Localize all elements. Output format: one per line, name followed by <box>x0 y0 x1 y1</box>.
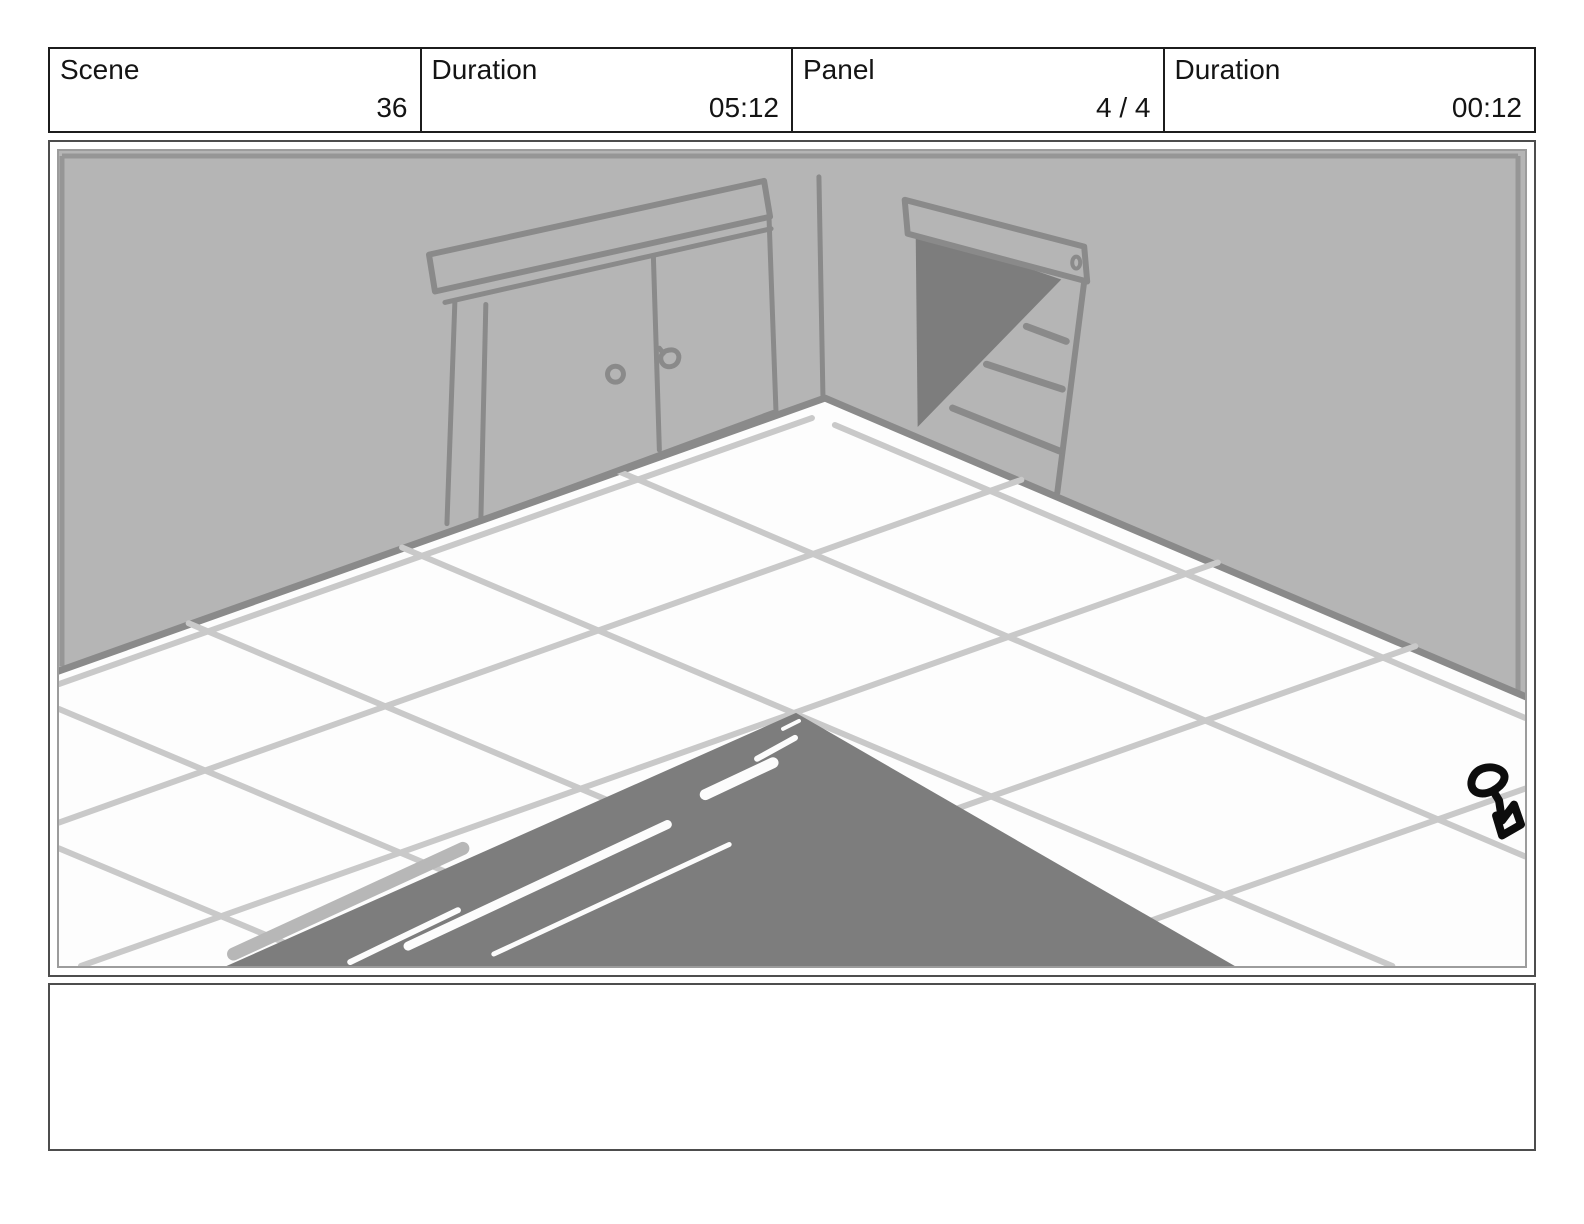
storyboard-canvas <box>57 149 1527 968</box>
storyboard-sketch <box>59 151 1525 966</box>
foreground-ramp <box>227 713 1235 966</box>
panel-duration-label: Duration <box>1175 54 1281 86</box>
notes-box[interactable] <box>48 983 1536 1151</box>
storyboard-panel-frame <box>48 140 1536 977</box>
ramp-fill <box>227 713 1235 966</box>
info-bar: Scene 36 Duration 05:12 Panel 4 / 4 Dura… <box>48 47 1536 133</box>
scene-value: 36 <box>376 92 407 124</box>
info-cell-scene-duration: Duration 05:12 <box>420 49 792 131</box>
panel-duration-value: 00:12 <box>1452 92 1522 124</box>
ink-scribble <box>1471 767 1521 835</box>
info-cell-scene: Scene 36 <box>50 49 420 131</box>
panel-value: 4 / 4 <box>1096 92 1150 124</box>
scene-label: Scene <box>60 54 139 86</box>
info-cell-panel-duration: Duration 00:12 <box>1163 49 1535 131</box>
scene-duration-label: Duration <box>432 54 538 86</box>
panel-label: Panel <box>803 54 875 86</box>
scene-duration-value: 05:12 <box>709 92 779 124</box>
info-cell-panel: Panel 4 / 4 <box>791 49 1163 131</box>
